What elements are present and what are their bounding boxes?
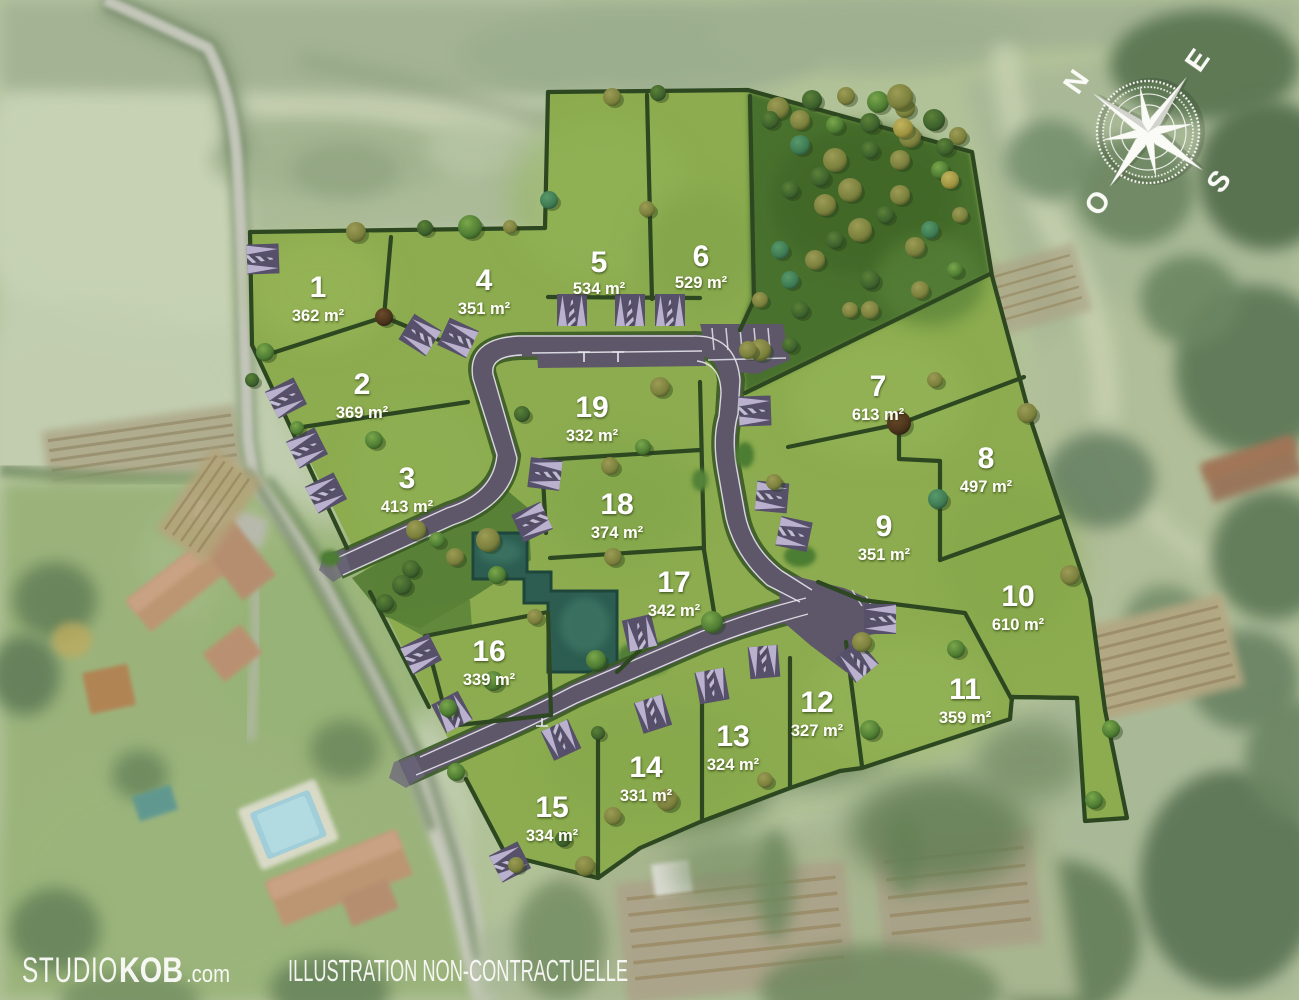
svg-text:6: 6 xyxy=(693,240,710,273)
svg-text:5: 5 xyxy=(591,246,608,279)
svg-text:17: 17 xyxy=(657,566,690,599)
svg-text:STUDIO: STUDIO xyxy=(22,951,118,990)
svg-text:497 m²: 497 m² xyxy=(960,478,1013,496)
svg-text:ILLUSTRATION NON-CONTRACTUELLE: ILLUSTRATION NON-CONTRACTUELLE xyxy=(288,953,628,988)
svg-text:4: 4 xyxy=(476,264,493,297)
svg-text:610 m²: 610 m² xyxy=(992,616,1045,634)
svg-text:18: 18 xyxy=(600,488,633,521)
svg-text:327 m²: 327 m² xyxy=(791,722,844,740)
svg-text:9: 9 xyxy=(876,510,893,543)
svg-text:332 m²: 332 m² xyxy=(566,427,619,445)
svg-text:15: 15 xyxy=(535,791,568,824)
svg-text:374 m²: 374 m² xyxy=(591,524,644,542)
svg-text:359 m²: 359 m² xyxy=(939,709,992,727)
svg-text:1: 1 xyxy=(310,271,327,304)
svg-text:413 m²: 413 m² xyxy=(381,498,434,516)
svg-text:3: 3 xyxy=(399,462,416,495)
svg-text:2: 2 xyxy=(354,368,371,401)
svg-text:351 m²: 351 m² xyxy=(858,546,911,564)
svg-text:331 m²: 331 m² xyxy=(620,787,673,805)
svg-text:362 m²: 362 m² xyxy=(292,307,345,325)
svg-text:369 m²: 369 m² xyxy=(336,404,389,422)
svg-text:334 m²: 334 m² xyxy=(526,827,579,845)
svg-text:19: 19 xyxy=(575,391,608,424)
svg-text:KOB: KOB xyxy=(119,951,183,990)
svg-text:7: 7 xyxy=(870,370,887,403)
svg-text:534 m²: 534 m² xyxy=(573,280,626,298)
svg-text:12: 12 xyxy=(800,686,833,719)
svg-text:16: 16 xyxy=(472,635,505,668)
svg-text:613 m²: 613 m² xyxy=(852,406,905,424)
svg-text:14: 14 xyxy=(629,751,663,784)
svg-text:11: 11 xyxy=(949,673,981,706)
svg-text:8: 8 xyxy=(978,442,995,475)
svg-text:10: 10 xyxy=(1001,580,1034,613)
svg-text:13: 13 xyxy=(716,720,749,753)
svg-text:351 m²: 351 m² xyxy=(458,300,511,318)
svg-text:342 m²: 342 m² xyxy=(648,602,701,620)
svg-text:324 m²: 324 m² xyxy=(707,756,760,774)
svg-text:.com: .com xyxy=(186,961,230,988)
svg-text:339 m²: 339 m² xyxy=(463,671,516,689)
svg-text:529 m²: 529 m² xyxy=(675,274,728,292)
